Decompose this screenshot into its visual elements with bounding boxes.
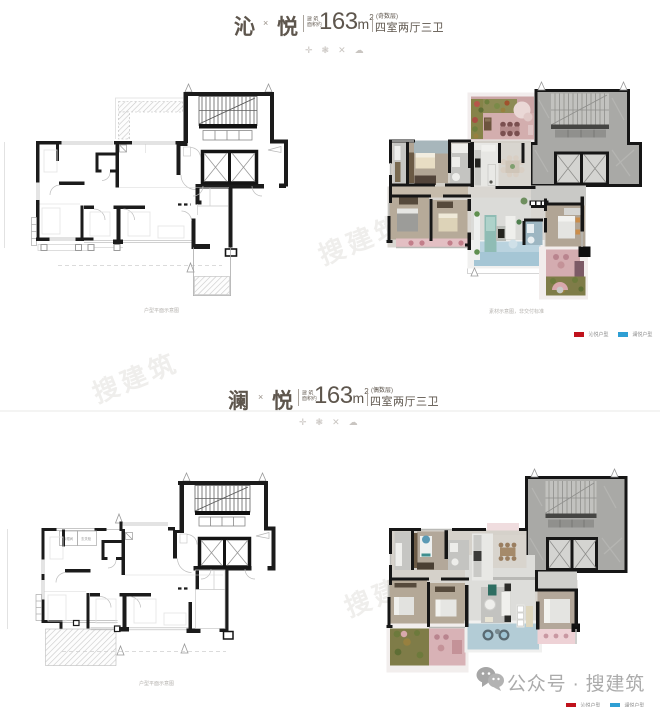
svg-text:玄关柜: 玄关柜 xyxy=(81,536,92,541)
